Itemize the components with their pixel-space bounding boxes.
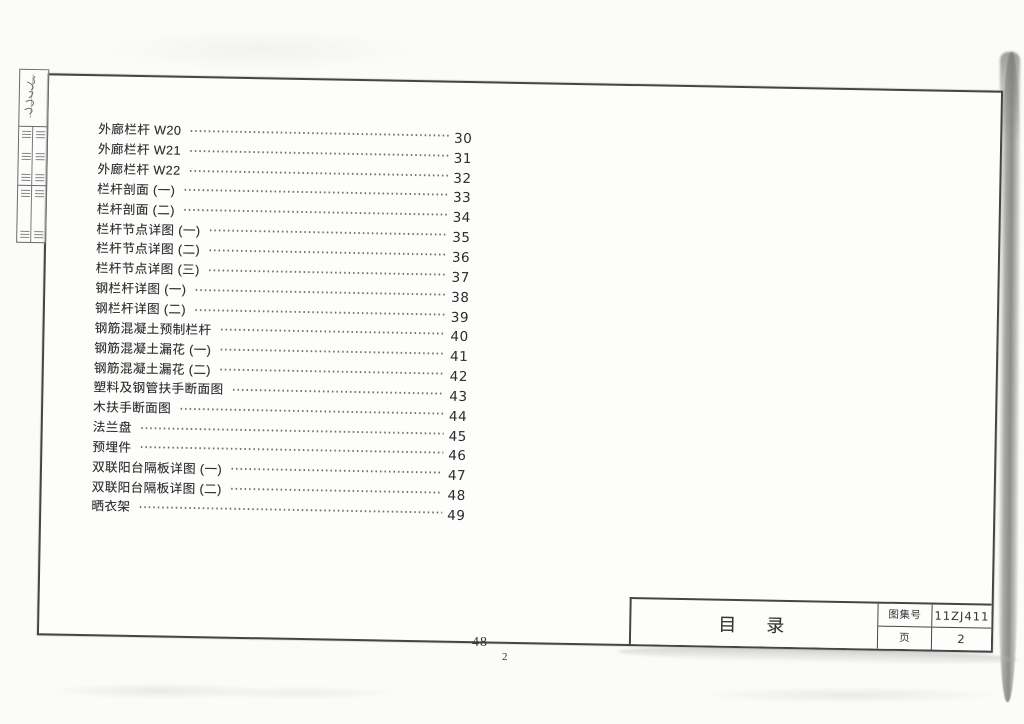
toc-entry-page: 30 [454,131,486,148]
toc-entry-page: 36 [452,250,484,267]
signature-strip [16,69,49,244]
toc-list: 外廊栏杆 W2030外廊栏杆 W2131外廊栏杆 W2232栏杆剖面 (一)33… [91,118,486,522]
stamp-mark [20,190,29,197]
dotted-leader [219,343,445,361]
toc-entry-page: 38 [451,289,483,306]
toc-entry-page: 42 [450,369,482,386]
page-edge-shadow-top [1000,52,1020,142]
toc-entry-label: 外廊栏杆 W20 [98,119,181,140]
stamp-mark [35,153,44,160]
stamp-mark [21,174,30,181]
stamp-mark [21,152,30,159]
sheet-title: 目 录 [631,599,878,649]
dotted-leader [231,383,444,401]
stamp-mark [20,231,29,238]
atlas-number-label: 图集号 [878,604,931,627]
dotted-leader [230,462,443,480]
toc-entry-page: 47 [448,468,480,485]
toc-entry-page: 46 [448,448,480,465]
title-block-grid: 图集号 11ZJ411 页 2 [877,604,992,651]
stamp-mark [35,174,44,181]
stamp-mark [34,190,43,197]
toc-entry-page: 43 [449,389,481,406]
title-block: 目 录 图集号 11ZJ411 页 2 [629,597,992,651]
stamp-marks [20,131,45,181]
footer-book-page: 48 [472,635,488,651]
toc-entry-page: 40 [450,329,482,346]
toc-entry-label: 钢筋混凝土预制栏杆 [94,317,211,338]
signature-cell [19,70,48,128]
stamp-marks [19,190,44,238]
toc-entry-label: 栏杆剖面 (二) [97,198,175,218]
atlas-number-value: 11ZJ411 [931,605,991,629]
stamp-mark [34,231,43,238]
dotted-leader [138,500,442,520]
page-number-value: 2 [931,627,991,651]
toc-entry-label: 钢筋混凝土漏花 (一) [94,337,211,358]
toc-entry-page: 39 [451,309,483,326]
toc-entry-page: 48 [447,488,479,505]
toc-entry-label: 外廊栏杆 W21 [98,138,181,159]
toc-entry-page: 32 [453,170,485,187]
toc-entry-label: 栏杆剖面 (一) [97,178,175,198]
toc-entry-label: 双联阳台隔板详图 (一) [92,456,222,477]
toc-entry-label: 钢栏杆详图 (一) [95,277,186,298]
footer-print-page: 2 [502,651,508,663]
toc-entry-page: 41 [450,349,482,366]
toc-entry-label: 钢栏杆详图 (二) [95,297,186,318]
toc-entry-label: 栏杆节点详图 (二) [96,238,200,259]
page-number-label: 页 [878,626,931,649]
toc-entry-page: 37 [451,270,483,287]
toc-entry-label: 预埋件 [92,436,131,456]
dotted-leader [219,363,445,381]
dotted-leader [219,323,445,341]
approval-stamps-cell [18,127,47,187]
toc-entry-page: 35 [452,230,484,247]
dotted-leader [230,482,443,500]
toc-entry-page: 31 [454,151,486,168]
toc-entry-label: 木扶手断面图 [93,396,171,416]
toc-entry-label: 栏杆节点详图 (三) [96,258,200,279]
toc-entry-page: 34 [452,210,484,227]
toc-entry-page: 49 [447,508,479,525]
stamp-mark [22,131,31,138]
toc-entry-page: 33 [453,190,485,207]
toc-entry-page: 45 [448,428,480,445]
signature-scribble [20,72,45,122]
stamp-mark [36,131,45,138]
scanned-page: 外廊栏杆 W2030外廊栏杆 W2131外廊栏杆 W2232栏杆剖面 (一)33… [0,0,1024,724]
toc-entry-page: 44 [449,408,481,425]
toc-entry-label: 法兰盘 [93,416,132,436]
toc-entry-label: 双联阳台隔板详图 (二) [92,476,222,497]
toc-entry-label: 钢筋混凝土漏花 (二) [94,357,211,378]
toc-entry-label: 塑料及钢管扶手断面图 [93,377,223,398]
toc-entry-label: 栏杆节点详图 (一) [96,218,200,239]
drawing-sheet-frame: 外廊栏杆 W2030外廊栏杆 W2131外廊栏杆 W2232栏杆剖面 (一)33… [37,73,1003,652]
toc-entry-label: 晒衣架 [91,496,130,516]
approval-stamps-cell [17,186,46,243]
toc-entry-label: 外廊栏杆 W22 [97,158,180,179]
